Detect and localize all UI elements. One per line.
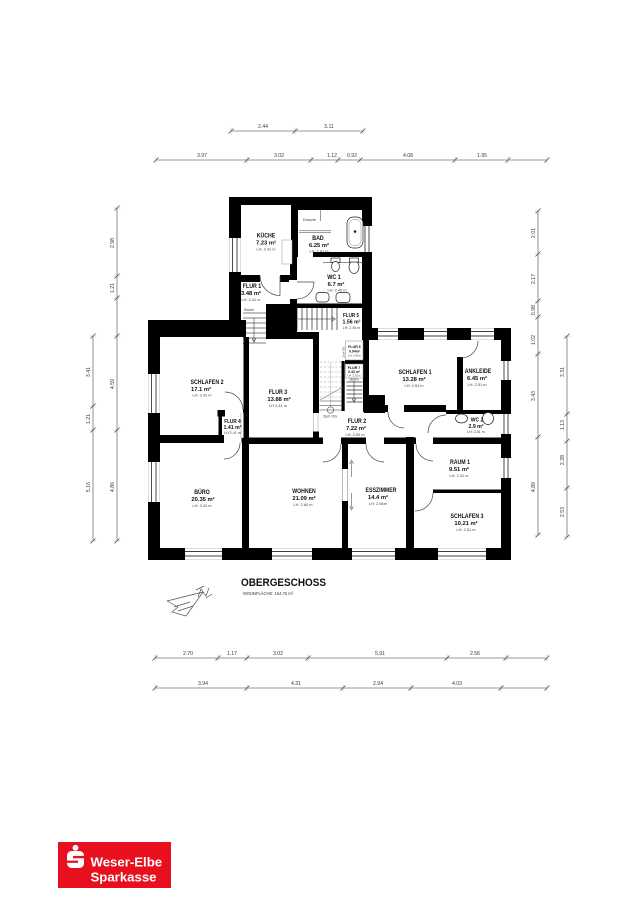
- svg-text:KÜCHE: KÜCHE: [257, 233, 276, 240]
- svg-text:1.95: 1.95: [477, 153, 487, 159]
- svg-text:FLUR 6: FLUR 6: [348, 345, 361, 349]
- svg-text:1.56 m²: 1.56 m²: [343, 320, 361, 326]
- svg-text:3.48 m²: 3.48 m²: [241, 290, 261, 297]
- svg-text:LH: 2.56m: LH: 2.56m: [369, 501, 387, 506]
- svg-text:21.09 m²: 21.09 m²: [292, 495, 315, 502]
- svg-text:LH: 2.45 m: LH: 2.45 m: [343, 326, 361, 330]
- svg-text:LH: 2.60 m: LH: 2.60 m: [345, 432, 364, 437]
- svg-text:3.02: 3.02: [274, 153, 284, 159]
- svg-text:2.98: 2.98: [110, 238, 116, 248]
- svg-text:Zum OG: Zum OG: [323, 415, 337, 419]
- svg-text:FLUR 5: FLUR 5: [343, 313, 359, 319]
- svg-text:LH: 2.41 m: LH: 2.41 m: [192, 393, 211, 398]
- svg-text:1.17: 1.17: [227, 651, 237, 657]
- svg-text:LH: 2.41 m: LH: 2.41 m: [192, 503, 211, 508]
- svg-text:4.59: 4.59: [110, 379, 116, 389]
- svg-text:3.43: 3.43: [531, 391, 537, 401]
- svg-text:1.12: 1.12: [327, 153, 337, 159]
- svg-text:2.17: 2.17: [531, 274, 537, 284]
- svg-text:LH: 2.51 m: LH: 2.51 m: [467, 382, 486, 387]
- svg-text:4.86: 4.86: [110, 482, 116, 492]
- svg-text:2.44: 2.44: [258, 124, 268, 130]
- svg-text:LH: 2.51 m: LH: 2.51 m: [467, 430, 485, 434]
- svg-text:4.31: 4.31: [291, 681, 301, 687]
- svg-text:Sparkasse: Sparkasse: [91, 870, 157, 885]
- svg-text:10.21 m²: 10.21 m²: [454, 520, 477, 527]
- svg-text:LH: 2.41 m: LH: 2.41 m: [241, 297, 260, 302]
- svg-text:2.56: 2.56: [470, 651, 480, 657]
- svg-text:BAD: BAD: [312, 235, 324, 242]
- svg-text:RAUM 1: RAUM 1: [450, 459, 470, 466]
- svg-text:4.89: 4.89: [531, 482, 537, 492]
- svg-text:WOHNEN: WOHNEN: [292, 488, 316, 495]
- svg-text:LH: 2.41m: LH: 2.41m: [348, 354, 362, 358]
- svg-text:Stufen: Stufen: [244, 308, 254, 312]
- svg-text:LH 2.41 m: LH 2.41 m: [224, 431, 241, 435]
- svg-text:Weser-Elbe: Weser-Elbe: [91, 855, 163, 870]
- svg-text:13.28 m²: 13.28 m²: [402, 376, 425, 383]
- svg-text:LH 2.41 m: LH 2.41 m: [269, 403, 287, 408]
- svg-text:FLUR 2: FLUR 2: [348, 418, 367, 425]
- svg-text:LH: 2.51 m: LH: 2.51 m: [404, 383, 423, 388]
- svg-text:2.70: 2.70: [183, 651, 193, 657]
- svg-text:SCHLAFEN 1: SCHLAFEN 1: [399, 369, 432, 376]
- svg-text:1.02: 1.02: [531, 335, 537, 345]
- svg-text:3.94: 3.94: [198, 681, 208, 687]
- svg-text:LH: 2.31 m: LH: 2.31 m: [449, 473, 468, 478]
- svg-text:BÜRO: BÜRO: [194, 489, 210, 496]
- svg-text:LH: 2.45 m: LH: 2.45 m: [327, 288, 346, 293]
- svg-text:5.91: 5.91: [375, 651, 385, 657]
- svg-text:OBERGESCHOSS: OBERGESCHOSS: [241, 577, 326, 589]
- svg-text:13.88 m²: 13.88 m²: [267, 396, 290, 403]
- svg-text:5.16: 5.16: [86, 482, 92, 492]
- svg-text:FLUR 3: FLUR 3: [269, 389, 288, 396]
- svg-text:2.01: 2.01: [531, 228, 537, 238]
- svg-text:3.97: 3.97: [197, 153, 207, 159]
- svg-text:7.22 m²: 7.22 m²: [346, 425, 366, 432]
- svg-text:0.92: 0.92: [347, 153, 357, 159]
- svg-text:Dusche: Dusche: [303, 218, 316, 222]
- svg-text:4.03: 4.03: [452, 681, 462, 687]
- svg-text:WC 2: WC 2: [471, 418, 484, 424]
- svg-text:7.23 m²: 7.23 m²: [256, 240, 276, 247]
- svg-text:3.02: 3.02: [273, 651, 283, 657]
- svg-text:SCHLAFEN 2: SCHLAFEN 2: [191, 379, 224, 386]
- svg-text:20.35 m²: 20.35 m²: [191, 496, 214, 503]
- svg-text:4.08: 4.08: [403, 153, 413, 159]
- svg-text:SCHLAFEN 3: SCHLAFEN 3: [451, 513, 484, 520]
- svg-text:3.41: 3.41: [86, 367, 92, 377]
- svg-text:WOHNFLÄCHE: 164.76 m²: WOHNFLÄCHE: 164.76 m²: [243, 591, 293, 596]
- svg-text:ESSZIMMER: ESSZIMMER: [366, 487, 397, 494]
- svg-text:2.94: 2.94: [373, 681, 383, 687]
- svg-text:Zum DG: Zum DG: [342, 346, 346, 358]
- svg-text:FLUR 1: FLUR 1: [243, 283, 262, 290]
- svg-text:LH: 2.51 m: LH: 2.51 m: [456, 527, 475, 532]
- svg-text:0.98: 0.98: [531, 305, 537, 315]
- svg-text:1.21: 1.21: [86, 414, 92, 424]
- svg-text:WC 1: WC 1: [327, 274, 341, 281]
- svg-text:Stufen: Stufen: [349, 378, 358, 382]
- svg-text:14.4 m²: 14.4 m²: [368, 494, 388, 501]
- svg-text:LH: 2.41 m: LH: 2.41 m: [256, 247, 275, 252]
- svg-text:3.11: 3.11: [324, 124, 334, 130]
- svg-text:2.53: 2.53: [560, 507, 566, 517]
- svg-text:2.28: 2.28: [560, 455, 566, 465]
- svg-text:LH: 2.41 m: LH: 2.41 m: [309, 248, 328, 253]
- svg-text:ANKLEIDE: ANKLEIDE: [465, 368, 492, 375]
- svg-text:3.31: 3.31: [560, 367, 566, 377]
- svg-text:6.45 m²: 6.45 m²: [467, 375, 487, 382]
- svg-text:LH: 2.80 m: LH: 2.80 m: [293, 502, 312, 507]
- svg-text:9.51 m²: 9.51 m²: [449, 466, 469, 473]
- svg-text:1.21: 1.21: [110, 283, 116, 293]
- svg-text:1.13: 1.13: [560, 420, 566, 430]
